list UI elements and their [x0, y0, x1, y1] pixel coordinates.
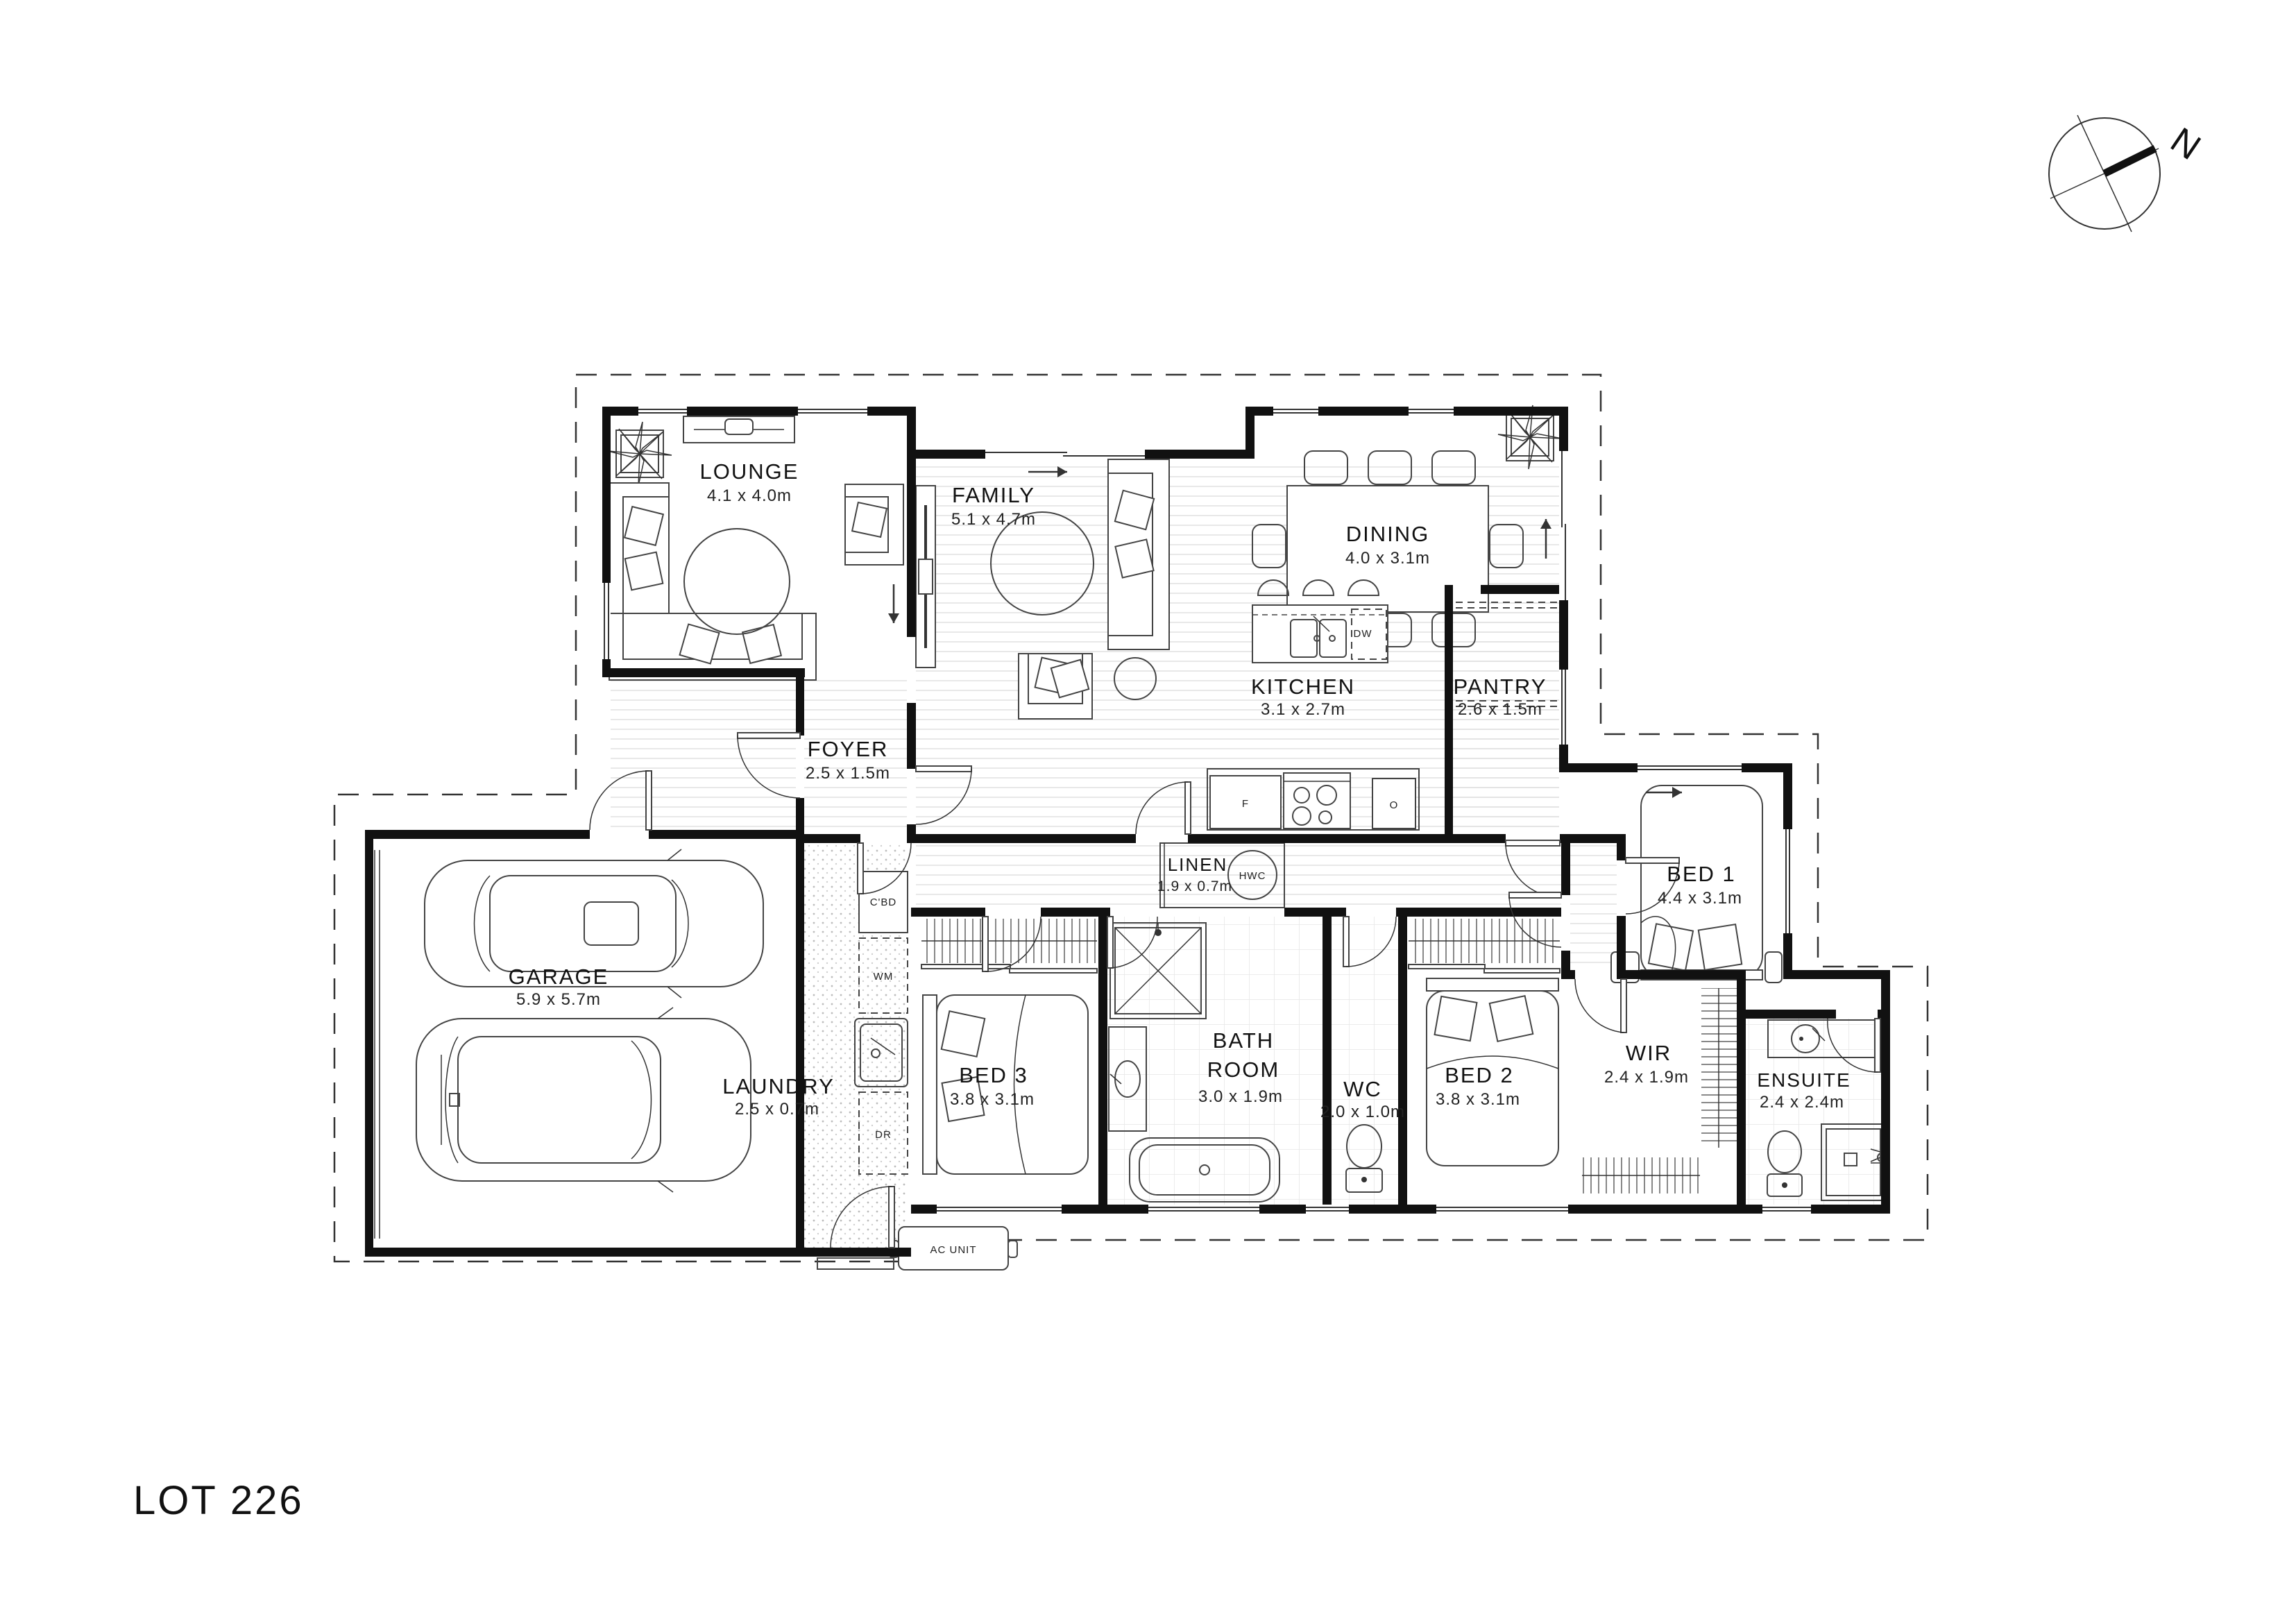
wir-racks — [1582, 988, 1737, 1193]
floor-plan-page: DW F O — [0, 0, 2296, 1623]
cupboard-label: C'BD — [870, 897, 897, 908]
dishwasher-label: DW — [1354, 628, 1372, 640]
window-icon — [1409, 407, 1454, 416]
room-dims-dining: 4.0 x 3.1m — [1345, 549, 1430, 568]
room-label-wir: WIR — [1626, 1041, 1672, 1065]
window-icon — [1273, 407, 1318, 416]
washing-machine-label: WM — [874, 971, 894, 983]
room-label-bath-line1: BATH — [1213, 1028, 1274, 1053]
window-icon — [1436, 1205, 1568, 1214]
room-dims-laundry: 2.5 x 0.7m — [735, 1100, 819, 1119]
bed3-furniture — [921, 919, 1097, 1174]
hall-leg-floor — [1570, 843, 1617, 970]
window-icon — [1306, 1205, 1349, 1214]
ensuite-floor — [1746, 1019, 1881, 1205]
garage-cars — [375, 849, 763, 1239]
porch-decking — [611, 677, 796, 830]
car-icon — [416, 1008, 751, 1192]
room-dims-bed1: 4.4 x 3.1m — [1658, 889, 1742, 908]
corner-sofa — [609, 483, 816, 680]
lot-title: LOT 226 — [133, 1478, 304, 1523]
window-icon — [602, 583, 611, 659]
window-icon — [937, 1205, 1062, 1214]
family-armchair — [1019, 654, 1092, 719]
room-dims-wc: 2.0 x 1.0m — [1320, 1103, 1405, 1121]
floor-plan-drawing: DW F O — [0, 0, 2296, 1623]
room-dims-bed3: 3.8 x 3.1m — [950, 1090, 1035, 1109]
door-step — [817, 1258, 894, 1269]
compass-icon: N — [2049, 115, 2207, 232]
room-label-pantry: PANTRY — [1454, 674, 1547, 699]
laundry-cupboard: C'BD — [859, 872, 908, 933]
room-label-kitchen: KITCHEN — [1251, 674, 1355, 699]
room-dims-pantry: 2.6 x 1.5m — [1458, 700, 1542, 719]
tv-cabinet — [683, 416, 794, 443]
oven-label: O — [1390, 799, 1399, 811]
bedside-table — [1765, 952, 1782, 983]
window-icon — [1783, 829, 1792, 933]
room-label-bed2: BED 2 — [1445, 1063, 1514, 1087]
hwc-label: HWC — [1239, 870, 1266, 882]
room-dims-wir: 2.4 x 1.9m — [1604, 1068, 1689, 1087]
window-icon — [1638, 763, 1742, 772]
room-label-ensuite: ENSUITE — [1757, 1069, 1851, 1091]
window-icon — [1148, 1205, 1259, 1214]
arrow-down-icon — [888, 584, 899, 623]
plant-icon — [608, 422, 672, 486]
window-icon — [638, 407, 687, 416]
fridge-label: F — [1242, 798, 1249, 810]
oven: O — [1372, 779, 1415, 829]
ac-unit-label: AC UNIT — [930, 1244, 977, 1256]
room-dims-garage: 5.9 x 5.7m — [516, 990, 601, 1009]
room-label-wc: WC — [1343, 1077, 1382, 1101]
room-label-dining: DINING — [1346, 522, 1430, 546]
room-dims-kitchen: 3.1 x 2.7m — [1261, 700, 1345, 719]
family-sofa — [1108, 459, 1169, 649]
cooktop — [1284, 773, 1350, 829]
room-label-bed1: BED 1 — [1667, 862, 1736, 886]
window-icon — [798, 407, 867, 416]
north-label: N — [2163, 120, 2208, 168]
room-label-laundry: LAUNDRY — [722, 1074, 835, 1098]
room-dims-linen: 1.9 x 0.7m — [1157, 878, 1232, 894]
room-label-foyer: FOYER — [808, 737, 889, 761]
door-icon — [1575, 979, 1626, 1033]
sliding-door-icon — [985, 450, 1145, 459]
room-label-bath-line2: ROOM — [1207, 1057, 1279, 1082]
window-icon — [1762, 1205, 1811, 1214]
room-label-family: FAMILY — [952, 483, 1035, 507]
wc-floor — [1332, 917, 1398, 1205]
room-dims-ensuite: 2.4 x 2.4m — [1760, 1093, 1844, 1112]
lounge-furniture — [608, 416, 903, 680]
room-label-garage: GARAGE — [509, 965, 609, 989]
room-dims-bath: 3.0 x 1.9m — [1198, 1087, 1283, 1106]
room-label-linen: LINEN — [1168, 854, 1228, 875]
fridge: F — [1210, 776, 1281, 829]
room-dims-bed2: 3.8 x 3.1m — [1436, 1090, 1520, 1109]
sliding-door-icon — [1559, 451, 1568, 600]
room-dims-lounge: 4.1 x 4.0m — [707, 486, 792, 505]
dryer-label: DR — [875, 1129, 892, 1141]
room-dims-family: 5.1 x 4.7m — [951, 510, 1036, 529]
room-label-lounge: LOUNGE — [700, 459, 799, 484]
bed2-furniture — [1409, 919, 1560, 1166]
room-dims-foyer: 2.5 x 1.5m — [806, 764, 890, 783]
room-label-bed3: BED 3 — [959, 1063, 1028, 1087]
lounge-armchair — [845, 484, 903, 565]
family-tv-unit — [916, 486, 935, 668]
window-icon — [1559, 670, 1568, 745]
